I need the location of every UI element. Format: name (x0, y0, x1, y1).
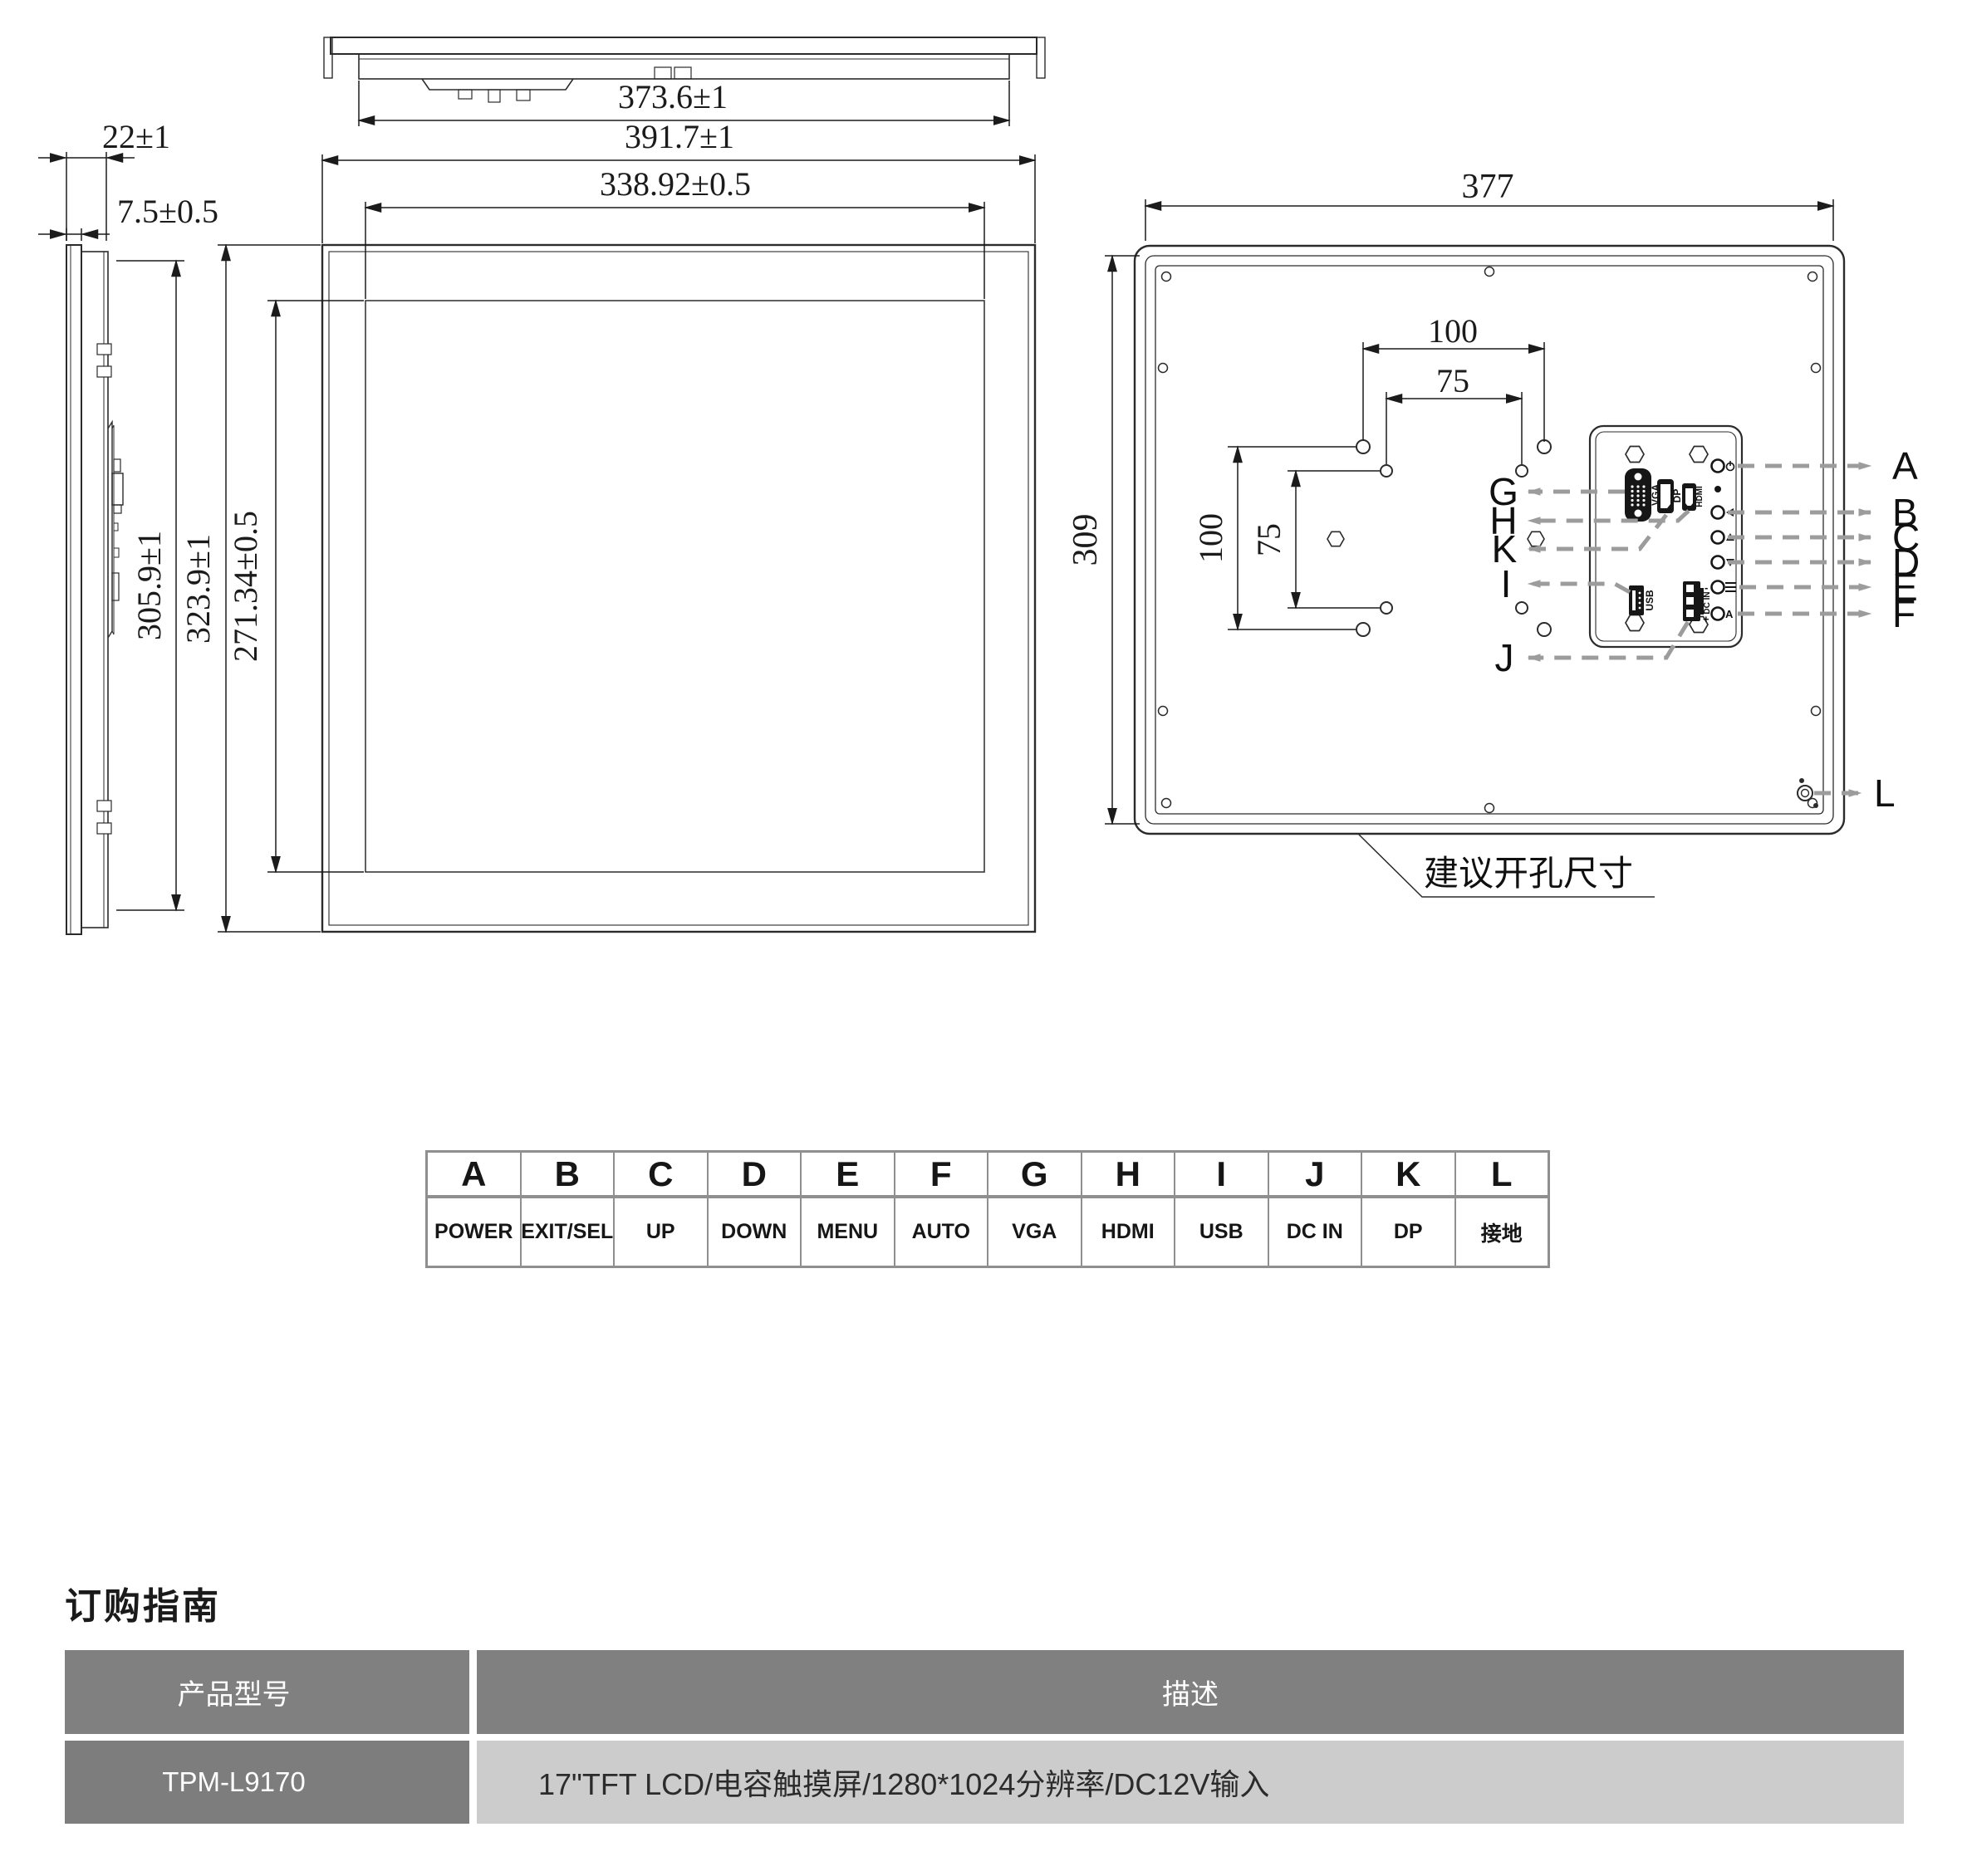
ordering-description-cell: 17"TFT LCD/电容触摸屏/1280*1024分辨率/DC12V输入 (477, 1741, 1904, 1824)
auto-icon: A (1725, 608, 1734, 620)
callout-A: A (1892, 444, 1918, 487)
callout-L: L (1874, 771, 1896, 815)
legend-label: 接地 (1456, 1198, 1548, 1266)
legend-letter: L (1456, 1153, 1548, 1198)
legend-col-d: D DOWN (707, 1153, 801, 1266)
up-button (1712, 531, 1724, 544)
legend-letter: E (802, 1153, 894, 1198)
hex-stud (1528, 531, 1544, 546)
technical-drawing: 373.6±1 391.7±1 338.92±0.5 22±1 7.5±0.5 … (0, 0, 1967, 1129)
auto-button (1712, 608, 1724, 620)
dim-cutout-width: 377 (1462, 168, 1514, 206)
hdmi-port-icon (1682, 483, 1696, 511)
ordering-model-cell: TPM-L9170 (65, 1741, 469, 1824)
dimension-labels: 373.6±1 391.7±1 338.92±0.5 22±1 7.5±0.5 … (102, 78, 751, 662)
ordering-col-header-description: 描述 (477, 1650, 1904, 1734)
legend-label: DP (1362, 1198, 1454, 1266)
legend-col-i: I USB (1174, 1153, 1268, 1266)
legend-letter: J (1269, 1153, 1361, 1198)
dp-port-label: DP (1671, 489, 1683, 503)
power-button (1712, 460, 1724, 473)
legend-label: AUTO (895, 1198, 988, 1266)
dim-active-width: 338.92±0.5 (600, 165, 751, 203)
legend-col-l: L 接地 (1454, 1153, 1548, 1266)
ordering-guide-title: 订购指南 (65, 1576, 221, 1629)
menu-button (1712, 581, 1724, 594)
dim-vesa-h-100: 100 (1428, 312, 1478, 350)
callout-I: I (1501, 562, 1512, 605)
legend-col-g: G VGA (987, 1153, 1081, 1266)
ordering-guide-table: 产品型号 描述 TPM-L9170 17"TFT LCD/电容触摸屏/1280*… (65, 1650, 1904, 1824)
legend-label: MENU (802, 1198, 894, 1266)
hdmi-port-label: HDMI (1695, 486, 1705, 507)
side-view (66, 245, 123, 934)
dc-in-port-label: DC IN (1703, 591, 1712, 614)
exit-sel-button (1712, 507, 1724, 519)
legend-label: DOWN (709, 1198, 801, 1266)
legend-label: VGA (988, 1198, 1081, 1266)
legend-col-a: A POWER (428, 1153, 520, 1266)
legend-col-h: H HDMI (1081, 1153, 1175, 1266)
legend-col-k: K DP (1361, 1153, 1454, 1266)
dim-thickness: 22±1 (102, 118, 170, 155)
dim-active-height: 271.34±0.5 (227, 511, 264, 662)
dc-plus-label: + (1703, 613, 1709, 625)
legend-letter: C (615, 1153, 707, 1198)
usb-port-icon (1629, 585, 1644, 615)
legend-label: POWER (428, 1198, 520, 1266)
back-view-dimension-labels: 377 309 100 75 100 75 (1067, 168, 1514, 566)
legend-letter: H (1082, 1153, 1175, 1198)
usb-port-label: USB (1644, 590, 1656, 611)
legend-label: DC IN (1269, 1198, 1361, 1266)
front-view (322, 245, 1035, 932)
down-button (1712, 556, 1724, 569)
legend-letter: F (895, 1153, 988, 1198)
button-icons: A (1725, 461, 1736, 620)
dim-outer-height: 323.9±1 (179, 534, 217, 644)
legend-label: USB (1175, 1198, 1268, 1266)
datasheet-page: 373.6±1 391.7±1 338.92±0.5 22±1 7.5±0.5 … (0, 0, 1967, 1876)
dim-vesa-v-100: 100 (1192, 513, 1229, 563)
callout-F: F (1892, 592, 1915, 635)
legend-col-b: B EXIT/SEL (520, 1153, 614, 1266)
legend-col-c: C UP (613, 1153, 707, 1266)
vesa-100-holes (1356, 440, 1551, 636)
legend-letter: I (1175, 1153, 1268, 1198)
vga-port-icon (1625, 468, 1651, 522)
legend-col-j: J DC IN (1268, 1153, 1361, 1266)
ordering-col-header-model: 产品型号 (65, 1650, 469, 1734)
dc-in-port-icon (1683, 581, 1704, 621)
dim-vesa-h-75: 75 (1436, 362, 1469, 399)
legend-letter: B (522, 1153, 614, 1198)
legend-label: HDMI (1082, 1198, 1175, 1266)
front-view-active-area (365, 301, 984, 872)
dim-outer-width: 391.7±1 (625, 118, 734, 155)
hex-stud (1327, 531, 1344, 546)
cutout-note: 建议开孔尺寸 (1359, 835, 1655, 897)
callout-leaders (1528, 466, 1871, 793)
power-icon (1727, 461, 1734, 471)
legend-letter: A (428, 1153, 520, 1198)
dim-bezel-thickness: 7.5±0.5 (117, 193, 218, 230)
dim-cutout-height: 309 (1067, 514, 1105, 566)
legend-letter: K (1362, 1153, 1454, 1198)
legend-label: EXIT/SEL (522, 1198, 614, 1266)
legend-letter: D (709, 1153, 801, 1198)
callout-J: J (1495, 636, 1514, 679)
legend-col-e: E MENU (800, 1153, 894, 1266)
cutout-note-text: 建议开孔尺寸 (1424, 854, 1633, 893)
dim-top-width: 373.6±1 (618, 78, 728, 115)
dim-vesa-v-75: 75 (1250, 523, 1288, 556)
button-port-legend-table: A POWER B EXIT/SEL C UP D DOWN E MENU F … (425, 1150, 1550, 1268)
osd-buttons (1712, 460, 1724, 620)
legend-col-f: F AUTO (894, 1153, 988, 1266)
dim-side-height: 305.9±1 (130, 531, 168, 640)
legend-label: UP (615, 1198, 707, 1266)
io-panel: VGA DP HDMI USB - DC IN (1590, 426, 1742, 647)
power-led (1714, 486, 1721, 492)
legend-letter: G (988, 1153, 1081, 1198)
menu-icon (1725, 583, 1736, 591)
